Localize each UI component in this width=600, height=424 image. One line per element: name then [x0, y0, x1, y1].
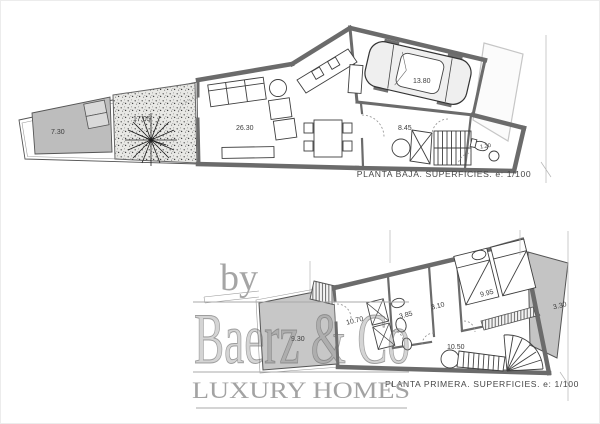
pool-steps: [84, 100, 109, 129]
chair: [343, 123, 352, 133]
fridge: [348, 65, 363, 94]
area-label-garage: 13.80: [413, 78, 431, 85]
floor2-title: PLANTA PRIMERA. SUPERFICIES. e: 1/100: [385, 379, 579, 389]
chair: [304, 141, 313, 151]
floor1-plan: 7.30 17.05 26.30 13.80 8.45 1.20 PLANTA …: [19, 28, 551, 183]
area-label-living: 26.30: [236, 125, 254, 132]
column: [392, 139, 410, 157]
area-label-hall: 8.45: [398, 125, 412, 132]
watermark-by: by: [220, 257, 258, 299]
watermark-tagline: LUXURY HOMES: [192, 378, 410, 403]
sideboard: [222, 147, 274, 159]
floorplan-image: 7.30 17.05 26.30 13.80 8.45 1.20 PLANTA …: [0, 0, 600, 424]
area-label-landing: 10.50: [447, 344, 465, 351]
area-label-pool: 7.30: [51, 129, 65, 136]
dining-table: [314, 120, 342, 157]
pool-terrace-strip: [19, 82, 198, 166]
armchair: [273, 118, 296, 140]
chair: [304, 123, 313, 133]
floorplan-canvas: 7.30 17.05 26.30 13.80 8.45 1.20 PLANTA …: [1, 1, 600, 424]
round-table: [270, 80, 287, 97]
area-label-terrace: 17.05: [133, 116, 151, 123]
floor1-title: PLANTA BAJA. SUPERFICIES. e: 1/100: [357, 169, 532, 179]
sink-icon: [489, 151, 499, 161]
watermark-brand: Baerz & Co: [194, 299, 410, 379]
chair: [343, 141, 352, 151]
armchair: [268, 98, 291, 120]
column: [441, 350, 459, 368]
